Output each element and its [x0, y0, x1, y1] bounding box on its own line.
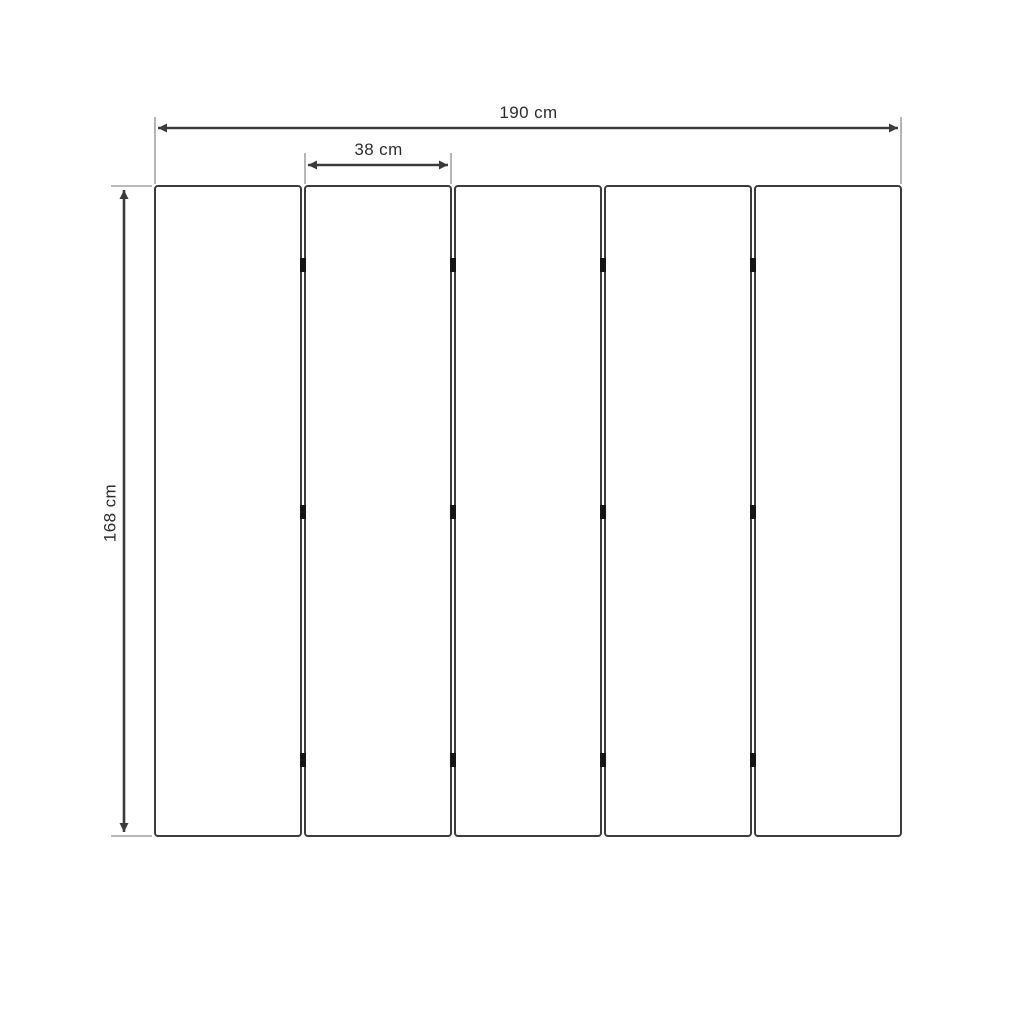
- panel-1: [155, 186, 301, 836]
- hinge-connector: [600, 505, 606, 519]
- panel-2: [305, 186, 451, 836]
- hinge-connector: [450, 753, 456, 767]
- panel-width-dimension-label: 38 cm: [305, 141, 452, 158]
- total-width-dimension-label: 190 cm: [155, 104, 902, 121]
- hinge-connector: [600, 258, 606, 272]
- panel-4: [605, 186, 751, 836]
- height-dimension-label: 168 cm: [102, 484, 119, 542]
- hinge-connector: [450, 258, 456, 272]
- hinge-connector: [300, 258, 306, 272]
- hinge-connector: [600, 753, 606, 767]
- drawing-geometry: [0, 0, 1024, 1024]
- panel-3: [455, 186, 601, 836]
- panel-dimension-drawing: 190 cm 38 cm 168 cm: [0, 0, 1024, 1024]
- hinge-connector: [300, 505, 306, 519]
- hinge-connector: [750, 753, 756, 767]
- panel-5: [755, 186, 901, 836]
- hinge-connector: [300, 753, 306, 767]
- hinge-connector: [450, 505, 456, 519]
- hinge-connector: [750, 258, 756, 272]
- hinge-connector: [750, 505, 756, 519]
- panel-group: [155, 186, 901, 836]
